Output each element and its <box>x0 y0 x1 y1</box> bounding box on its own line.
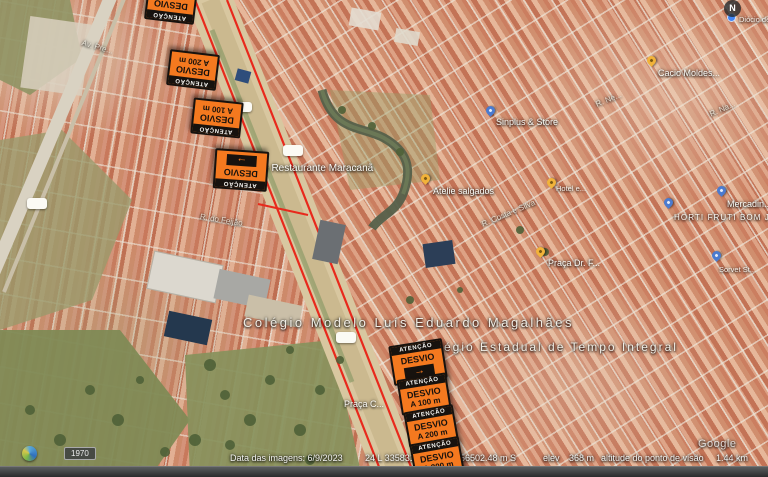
poi-label-hotel-small[interactable]: Hotel e... <box>556 184 586 193</box>
status-eye-alt-label: altitude do ponto de visão <box>601 453 704 463</box>
poi-label-diocio[interactable]: Diócio de Tecid... <box>739 15 768 24</box>
detour-arrow-icon: → <box>226 154 257 167</box>
detour-sign-top-100[interactable]: ATENÇÃO DESVIO A 100 m <box>190 97 243 138</box>
blank-label-chip[interactable] <box>336 332 356 343</box>
poi-label-hortifruti[interactable]: HORTI FRUTI BOM JE... <box>674 213 768 222</box>
area-label-colegio-modelo: Colégio Modelo Luís Eduardo Magalhães <box>243 315 574 330</box>
arrow-glyph: → <box>236 155 248 168</box>
detour-sign-top-200[interactable]: ATENÇÃO DESVIO A 200 m <box>166 49 220 91</box>
compass-north-icon[interactable]: N <box>724 0 741 17</box>
blank-label-chip[interactable] <box>283 145 303 156</box>
bottom-app-bar <box>0 466 768 477</box>
historical-imagery-globe-icon[interactable] <box>22 446 37 461</box>
status-elev-value: 368 m <box>569 453 594 463</box>
blank-label-chip[interactable] <box>27 198 47 209</box>
status-utm-southing: 56502.48 m S <box>460 453 516 463</box>
status-eye-alt-value: 1.44 km <box>716 453 748 463</box>
poi-label-cacio[interactable]: Cacio Moldes... <box>658 68 720 78</box>
status-elev-label: elev <box>543 453 560 463</box>
poi-label-praca-c[interactable]: Praça C... <box>344 399 384 409</box>
google-watermark: Google <box>698 438 736 450</box>
poi-label-mercadinho[interactable]: Mercadin... <box>727 199 768 209</box>
poi-label-atelie[interactable]: Atelie salgados <box>433 186 494 196</box>
earth-canvas[interactable]: Hotel e Restaurante Maracanã Atelie salg… <box>0 0 768 477</box>
status-imagery-date: Data das imagens: 6/9/2023 <box>230 453 343 463</box>
poi-label-sorvet[interactable]: Sorvet St... <box>719 265 756 274</box>
detour-sign-top-arrow[interactable]: ATENÇÃO DESVIO → <box>213 148 270 192</box>
poi-label-sinplus[interactable]: Sinplus & Store <box>496 117 558 127</box>
area-label-colegio-estadual: Colégio Estadual de Tempo Integral <box>420 340 678 354</box>
time-slider-year-badge[interactable]: 1970 <box>64 447 96 460</box>
poi-label-praca-dr[interactable]: Praça Dr. F... <box>548 258 600 268</box>
